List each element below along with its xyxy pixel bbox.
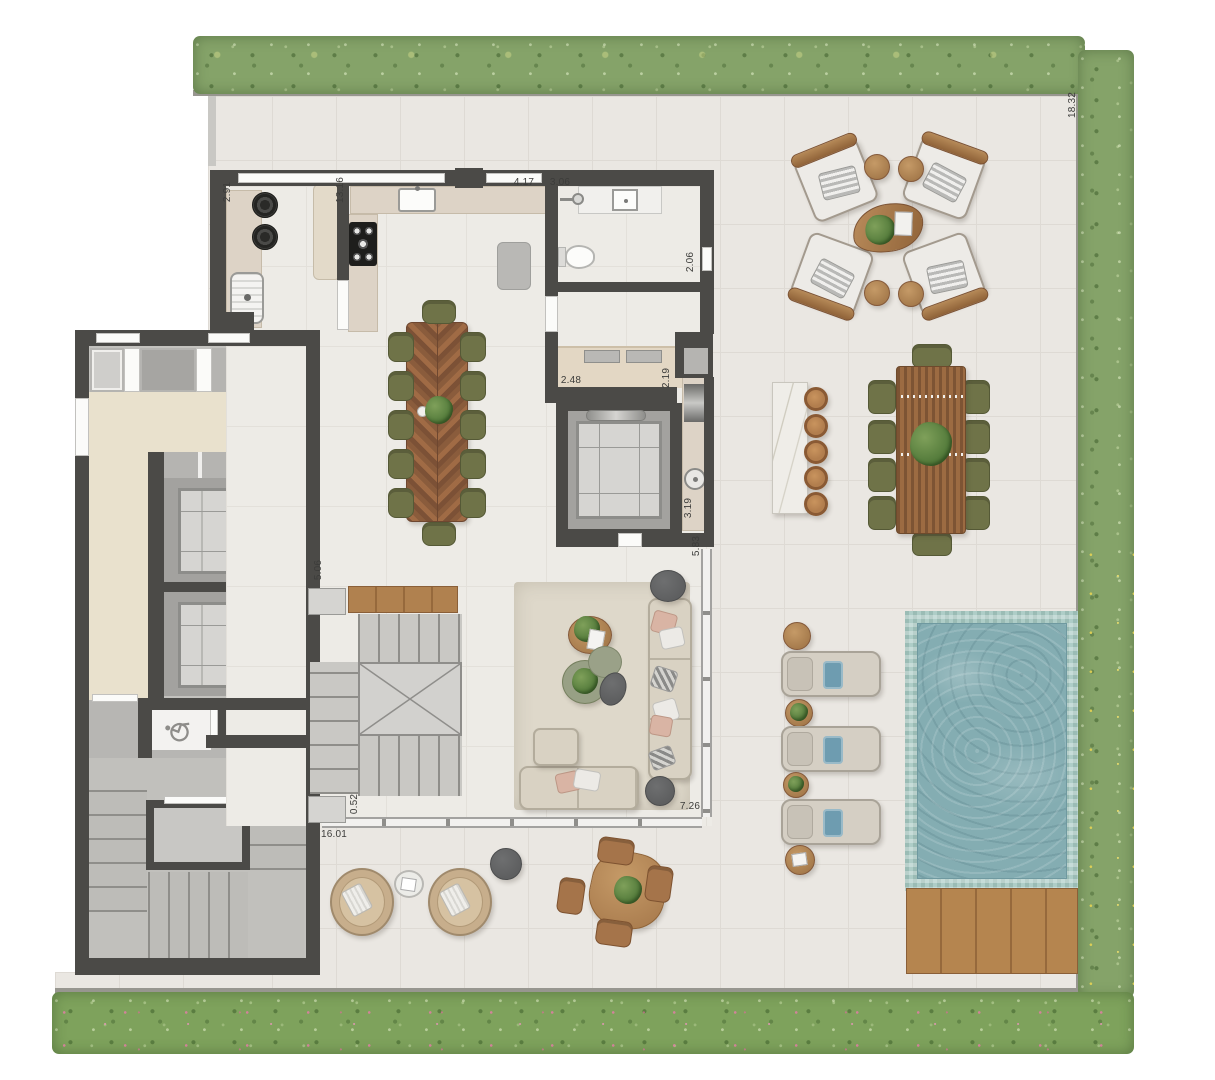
closet-divider — [196, 348, 212, 392]
dimension-label: 7.26 — [672, 801, 708, 813]
floor-plan-canvas: 2.91 13.16 4.17 3.06 2.06 2.48 2.19 3.19… — [0, 0, 1215, 1080]
faucet — [415, 186, 420, 191]
bar-stool — [804, 492, 828, 516]
dimension-label: 16.01 — [312, 829, 356, 841]
door-opening — [618, 533, 642, 547]
pillow — [926, 259, 969, 294]
swivel-chair — [428, 868, 492, 936]
wall — [138, 698, 306, 710]
pool-water — [917, 623, 1067, 879]
dimension-label: 2.48 — [554, 375, 588, 387]
sink-icon — [398, 188, 436, 212]
dining-chair — [460, 488, 486, 518]
dining-chair — [460, 332, 486, 362]
shower-head — [572, 193, 584, 205]
wall — [210, 186, 226, 346]
dimension-label: 3.19 — [683, 491, 695, 525]
plant-icon — [862, 212, 898, 248]
garden-bottom — [52, 992, 1134, 1054]
hedge-right — [1078, 50, 1134, 998]
closet-panel — [142, 350, 194, 390]
pillow — [648, 714, 673, 738]
corridor-floor — [89, 454, 151, 700]
bar-stool — [804, 414, 828, 438]
stair-pier — [308, 588, 346, 615]
wall — [455, 168, 483, 188]
outdoor-dining-chair — [868, 458, 896, 492]
window — [208, 333, 250, 343]
side-table — [783, 772, 809, 798]
outdoor-chair — [644, 864, 675, 903]
glass-wall — [322, 817, 702, 828]
toilet-icon — [565, 245, 595, 269]
yellow-flowers — [1078, 543, 1134, 998]
dimension-label: 2.91 — [222, 175, 234, 209]
outdoor-dining-chair — [868, 380, 896, 414]
side-table — [898, 281, 924, 307]
dining-chair — [422, 522, 456, 546]
wall — [148, 452, 164, 702]
door-opening — [545, 296, 558, 332]
duct — [684, 348, 708, 374]
dining-chair — [388, 332, 414, 362]
plant-icon — [788, 776, 804, 792]
pillow — [572, 768, 601, 792]
wall — [206, 735, 306, 748]
drain — [624, 199, 628, 203]
side-table — [394, 870, 424, 898]
sink-icon — [612, 189, 638, 211]
void-x-icon — [360, 664, 460, 734]
elevator-handle — [586, 410, 646, 421]
kitchen-side-table — [497, 242, 531, 290]
wall — [545, 387, 677, 403]
stove-icon — [349, 222, 377, 266]
outdoor-chair — [594, 918, 633, 949]
pool-deck — [906, 888, 1078, 974]
entry-door — [75, 398, 89, 456]
wall — [700, 170, 714, 292]
dimension-label: 5.06 — [313, 553, 325, 587]
elevator-icon — [576, 421, 662, 519]
outdoor-dining-chair — [868, 420, 896, 454]
closet-door — [92, 350, 122, 390]
outdoor-chair — [596, 836, 635, 867]
landing-door — [164, 796, 228, 804]
pillow — [818, 165, 862, 201]
closet-divider — [124, 348, 140, 392]
dining-chair — [460, 371, 486, 401]
wall — [556, 533, 618, 547]
bar-counter — [772, 382, 808, 514]
book — [791, 852, 808, 867]
dimension-label: 18.32 — [1067, 85, 1079, 125]
table-runner — [901, 395, 963, 398]
stair-flight — [148, 872, 248, 958]
dining-chair — [460, 449, 486, 479]
hedge-top — [193, 36, 1085, 94]
side-table — [864, 280, 890, 306]
side-table — [864, 154, 890, 180]
magazine — [400, 877, 417, 892]
ottoman — [533, 728, 579, 766]
side-table — [783, 622, 811, 650]
outdoor-chair — [556, 876, 587, 915]
console-table — [348, 586, 458, 613]
towel — [823, 736, 843, 764]
outdoor-dining-chair — [912, 532, 952, 556]
wall — [642, 533, 714, 547]
wall — [306, 346, 320, 958]
wheelchair-icon — [158, 708, 198, 750]
lounger-headrest — [787, 657, 813, 691]
dimension-label: 13.16 — [335, 170, 347, 210]
sun-lounger — [781, 726, 881, 772]
appliance — [684, 384, 706, 422]
stair-flight — [358, 736, 462, 796]
accessible-wc-sign — [145, 708, 211, 750]
glass-wall — [701, 549, 712, 817]
outdoor-dining-chair — [912, 344, 952, 368]
outdoor-dining-chair — [962, 458, 990, 492]
sun-lounger — [781, 799, 881, 845]
lounger-headrest — [787, 805, 813, 839]
dining-chair — [422, 300, 456, 324]
outdoor-dining-chair — [868, 496, 896, 530]
tray — [894, 211, 913, 236]
dimension-label: 2.19 — [661, 361, 673, 395]
window — [96, 333, 140, 343]
tray — [584, 350, 620, 363]
parapet-pillar — [208, 96, 216, 166]
dimension-label: 5.83 — [691, 529, 703, 563]
pillow — [921, 161, 968, 204]
wall — [700, 292, 714, 334]
lounger-headrest — [787, 732, 813, 766]
plant-icon — [790, 703, 808, 721]
stair-pier — [308, 796, 346, 823]
towel — [823, 661, 843, 689]
dining-chair — [388, 410, 414, 440]
side-table — [785, 845, 815, 875]
side-table — [898, 156, 924, 182]
dining-chair — [460, 410, 486, 440]
pouf — [650, 570, 686, 602]
sun-lounger — [781, 651, 881, 697]
dining-chair — [388, 449, 414, 479]
tray — [626, 350, 662, 363]
door-opening — [337, 280, 349, 330]
stair-flight — [89, 790, 147, 912]
sink-icon — [684, 468, 706, 490]
swivel-chair — [330, 868, 394, 936]
drain — [244, 294, 251, 301]
towel — [823, 809, 843, 837]
door-opening — [92, 694, 138, 702]
side-table — [785, 699, 813, 727]
bar-stool — [804, 440, 828, 464]
bar-stool — [804, 466, 828, 490]
dining-chair — [388, 371, 414, 401]
wall — [545, 186, 558, 296]
pink-flowers — [52, 992, 1134, 1054]
dining-chair — [388, 488, 414, 518]
wall — [704, 377, 714, 533]
wall — [138, 698, 152, 758]
wall — [545, 282, 714, 292]
window — [702, 247, 712, 271]
pouf — [645, 776, 675, 806]
dimension-label: 3.06 — [544, 177, 576, 189]
drain — [693, 477, 698, 482]
stair-flight — [358, 614, 462, 662]
washer-icon — [252, 192, 278, 218]
dimension-label: 2.06 — [685, 245, 697, 279]
pouf — [490, 848, 522, 880]
dimension-label: 0.52 — [349, 787, 361, 821]
dimension-label: 4.17 — [508, 177, 540, 189]
stair-flight — [310, 662, 358, 794]
pillow — [809, 257, 856, 300]
washer-icon — [252, 224, 278, 250]
stair-void — [358, 662, 462, 736]
wall — [75, 958, 320, 975]
kitchen-counter — [350, 186, 546, 214]
outdoor-dining-chair — [962, 420, 990, 454]
outdoor-dining-chair — [962, 380, 990, 414]
bar-stool — [804, 387, 828, 411]
outdoor-dining-chair — [962, 496, 990, 530]
